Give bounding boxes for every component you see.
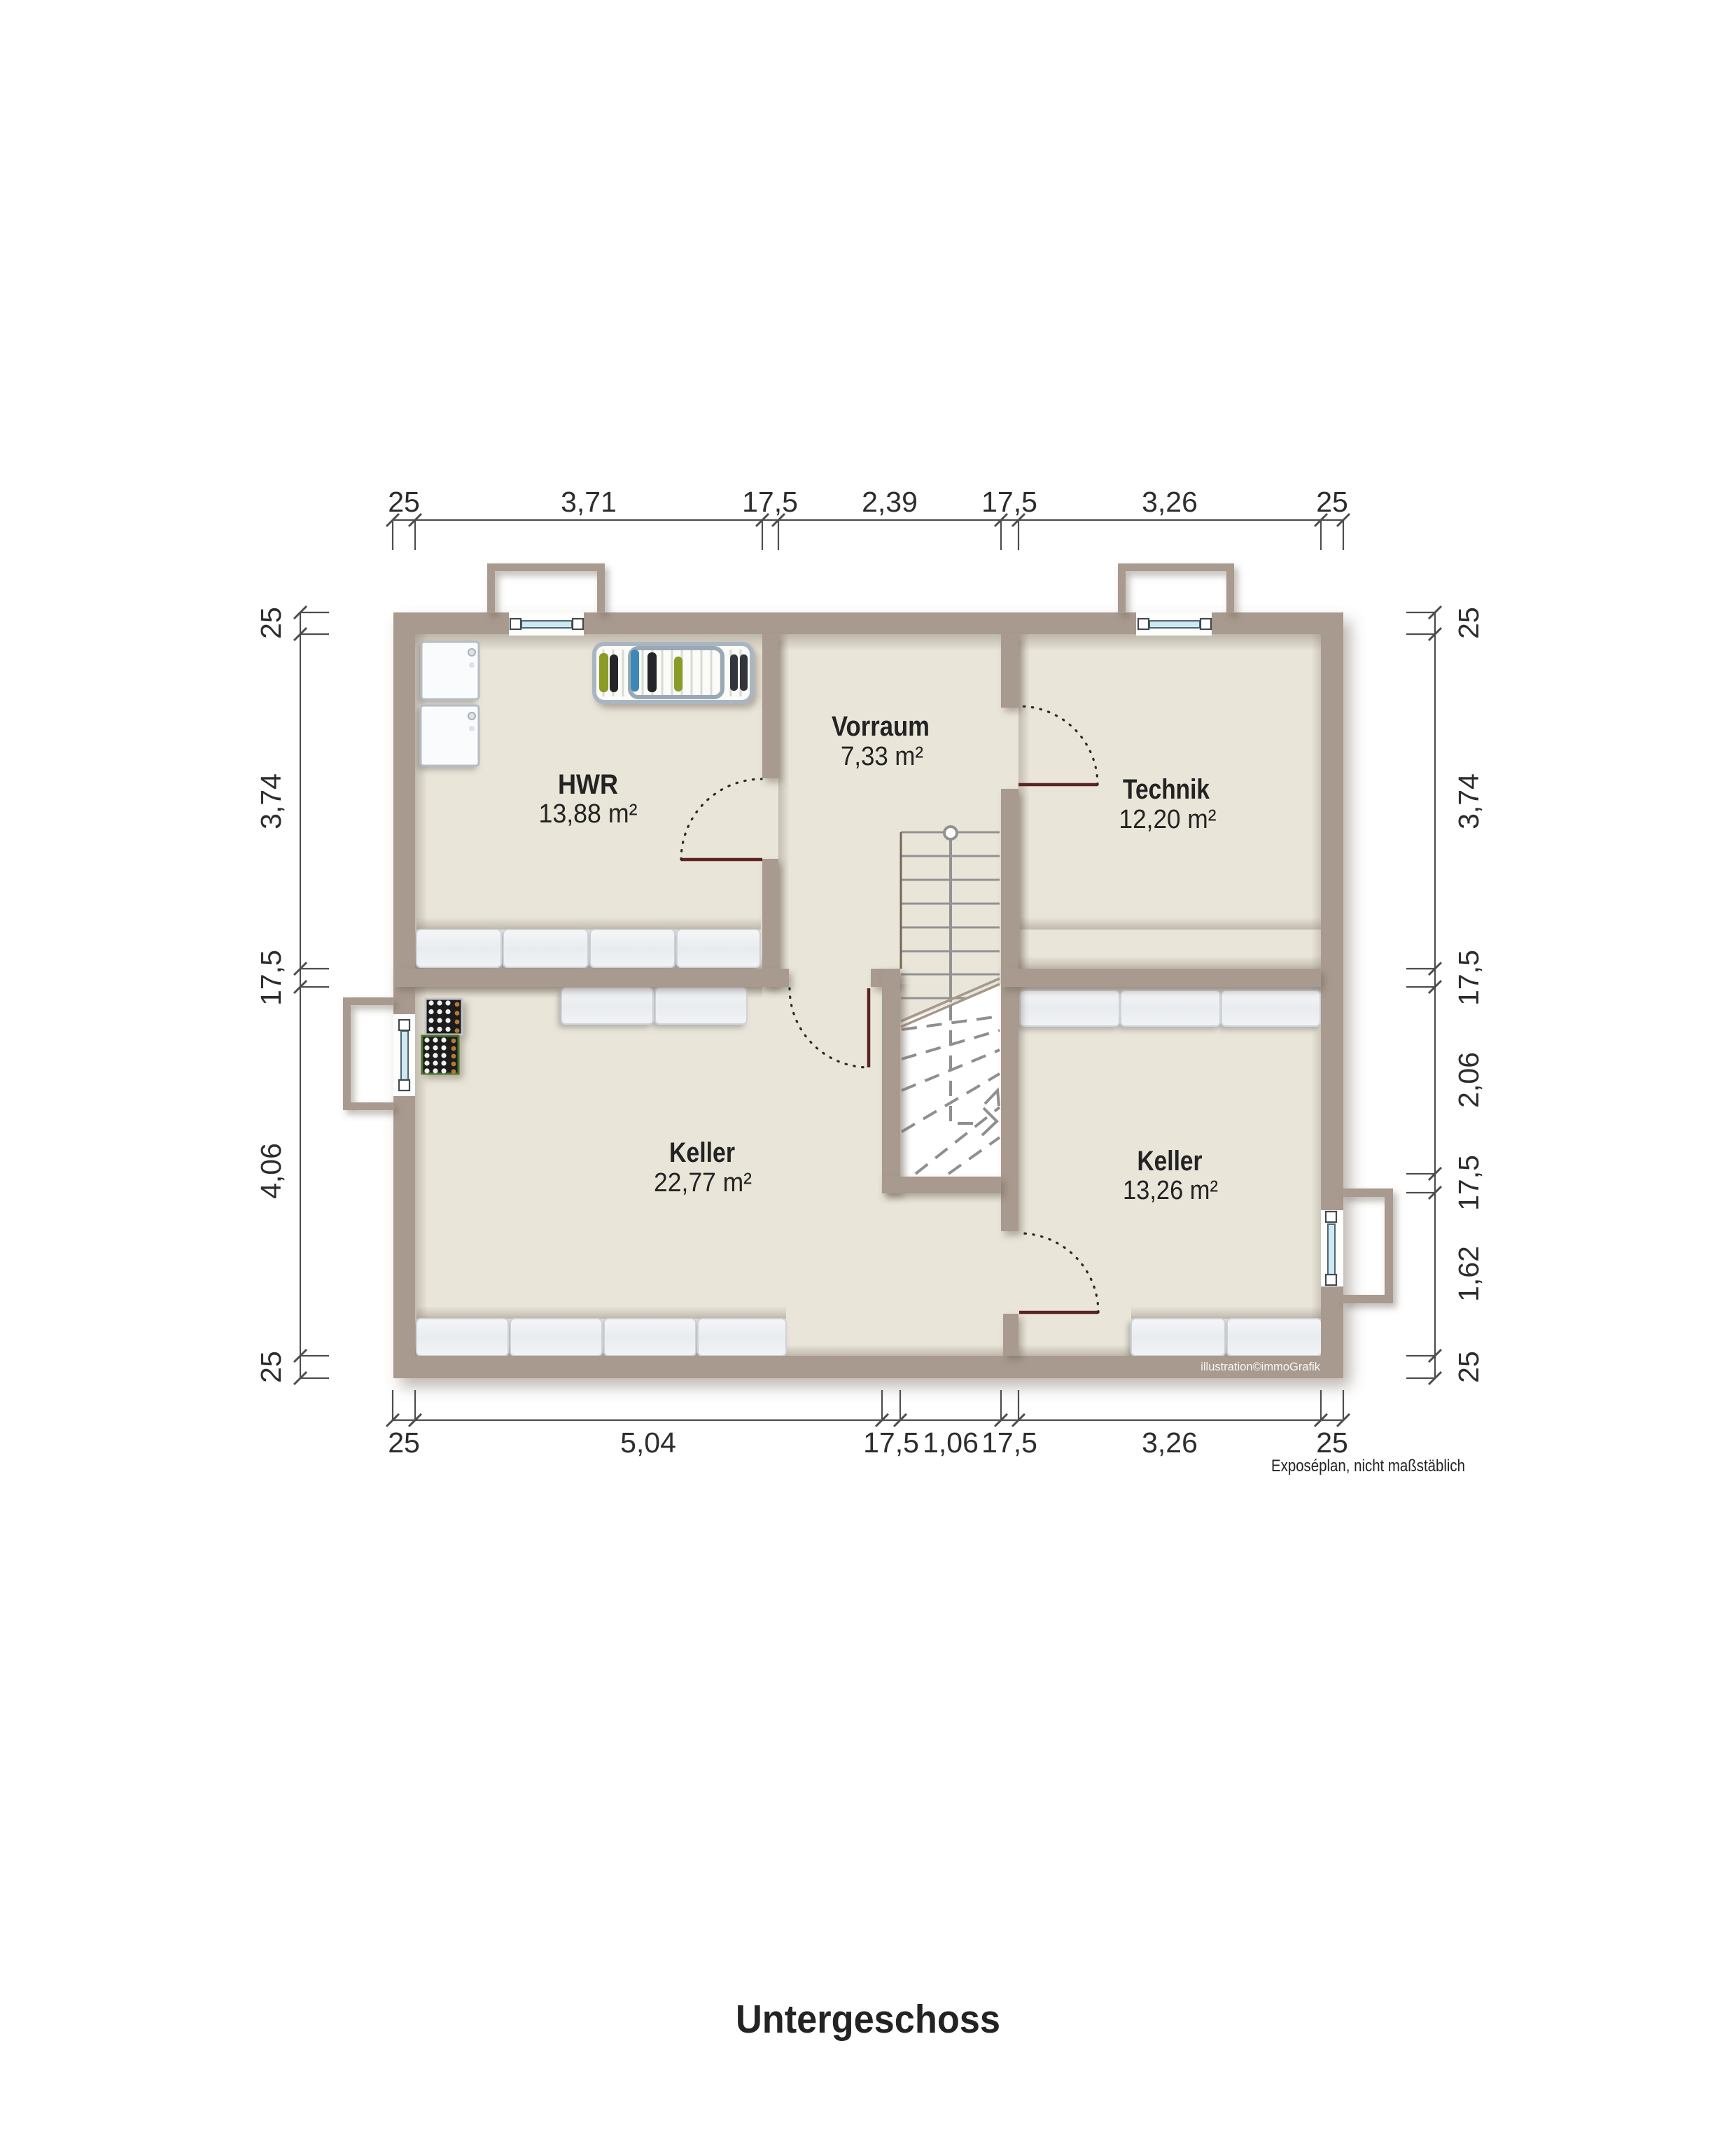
svg-text:3,74: 3,74: [255, 773, 287, 829]
svg-text:13,88 m²: 13,88 m²: [539, 799, 638, 829]
svg-text:17,5: 17,5: [863, 1426, 919, 1459]
svg-text:25: 25: [1452, 607, 1485, 639]
svg-text:25: 25: [255, 1351, 287, 1383]
svg-text:Exposéplan, nicht maßstäblich: Exposéplan, nicht maßstäblich: [1271, 1457, 1465, 1475]
svg-text:17,5: 17,5: [255, 950, 287, 1006]
svg-text:3,74: 3,74: [1452, 773, 1485, 829]
svg-text:25: 25: [388, 486, 420, 518]
svg-text:1,62: 1,62: [1452, 1246, 1485, 1302]
svg-text:13,26 m²: 13,26 m²: [1123, 1176, 1218, 1205]
svg-text:2,39: 2,39: [862, 486, 918, 518]
svg-text:Untergeschoss: Untergeschoss: [736, 1997, 1000, 2042]
svg-text:25: 25: [1316, 486, 1348, 518]
svg-text:17,5: 17,5: [742, 486, 798, 518]
svg-text:Keller: Keller: [1137, 1146, 1203, 1177]
svg-text:25: 25: [1452, 1351, 1485, 1383]
svg-text:12,20 m²: 12,20 m²: [1119, 805, 1217, 834]
svg-text:17,5: 17,5: [1452, 1155, 1485, 1211]
svg-text:HWR: HWR: [558, 769, 618, 800]
svg-text:2,06: 2,06: [1452, 1052, 1485, 1108]
svg-text:4,06: 4,06: [255, 1143, 287, 1199]
svg-text:Technik: Technik: [1123, 774, 1210, 805]
svg-text:17,5: 17,5: [981, 486, 1037, 518]
svg-text:3,71: 3,71: [561, 486, 617, 518]
svg-text:5,04: 5,04: [620, 1426, 676, 1459]
svg-text:17,5: 17,5: [1452, 950, 1485, 1006]
svg-text:25: 25: [255, 607, 287, 639]
svg-text:Keller: Keller: [669, 1137, 735, 1168]
svg-text:1,06: 1,06: [923, 1426, 979, 1459]
svg-text:illustration©immoGrafik: illustration©immoGrafik: [1200, 1361, 1321, 1373]
svg-text:17,5: 17,5: [981, 1426, 1037, 1459]
svg-text:22,77 m²: 22,77 m²: [654, 1168, 752, 1198]
svg-text:3,26: 3,26: [1142, 486, 1198, 518]
svg-text:25: 25: [1316, 1426, 1348, 1459]
svg-text:3,26: 3,26: [1142, 1426, 1198, 1459]
svg-text:Vorraum: Vorraum: [832, 711, 930, 742]
svg-text:25: 25: [388, 1426, 420, 1459]
svg-text:7,33 m²: 7,33 m²: [841, 742, 923, 771]
